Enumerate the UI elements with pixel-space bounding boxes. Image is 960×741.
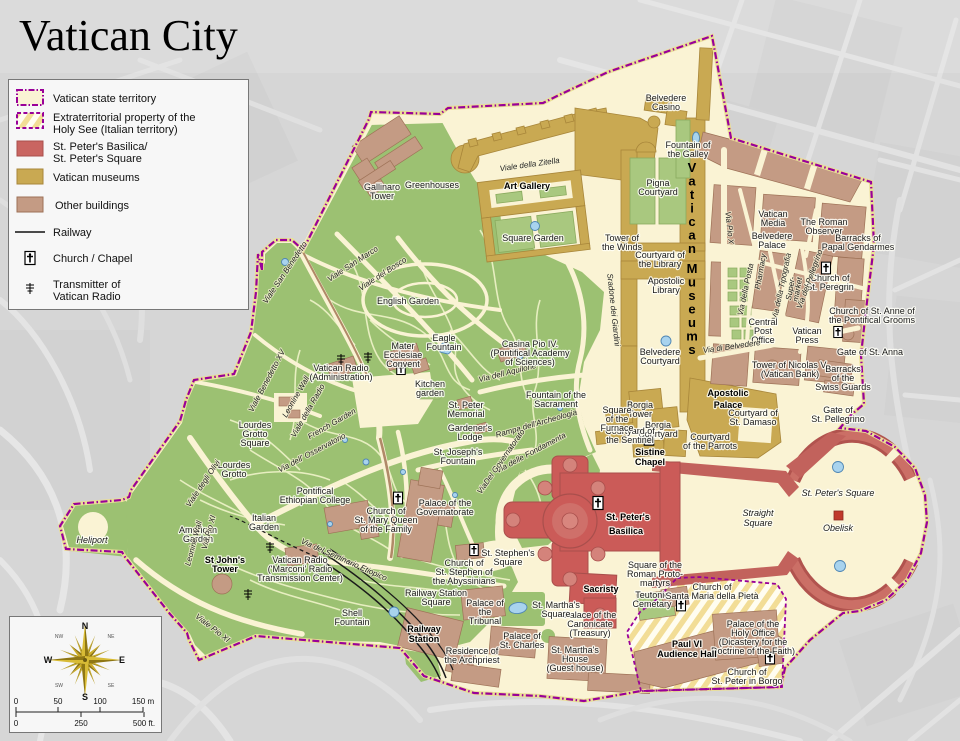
svg-text:Sistine: Sistine bbox=[635, 447, 665, 457]
svg-text:Memorial: Memorial bbox=[447, 409, 484, 419]
svg-text:Garden: Garden bbox=[249, 522, 279, 532]
svg-text:Square: Square bbox=[421, 597, 450, 607]
svg-text:Extraterritorial property of t: Extraterritorial property of the bbox=[53, 112, 195, 124]
svg-text:Railway: Railway bbox=[407, 624, 441, 634]
svg-text:Paul VI: Paul VI bbox=[672, 639, 702, 649]
svg-text:the Archpriest: the Archpriest bbox=[444, 655, 500, 665]
svg-text:Tower: Tower bbox=[212, 564, 238, 574]
svg-text:St. Peter's Square: St. Peter's Square bbox=[53, 153, 142, 165]
svg-text:the Pontifical Grooms: the Pontifical Grooms bbox=[829, 315, 916, 325]
svg-text:Palace: Palace bbox=[758, 240, 786, 250]
svg-text:Audience Hall: Audience Hall bbox=[657, 649, 717, 659]
svg-text:(Administration): (Administration) bbox=[309, 372, 372, 382]
svg-text:Vatican museums: Vatican museums bbox=[53, 172, 140, 184]
svg-text:St. Pellegrino: St. Pellegrino bbox=[811, 414, 865, 424]
svg-text:Grotto: Grotto bbox=[221, 469, 246, 479]
svg-text:(Vatican Bank): (Vatican Bank) bbox=[761, 369, 819, 379]
svg-text:Holy See (Italian territory): Holy See (Italian territory) bbox=[53, 124, 178, 136]
svg-text:S: S bbox=[82, 692, 88, 702]
svg-text:N: N bbox=[82, 621, 89, 631]
svg-text:Church / Chapel: Church / Chapel bbox=[53, 253, 133, 265]
svg-text:Square Garden: Square Garden bbox=[502, 233, 564, 243]
svg-text:Sacrament: Sacrament bbox=[534, 399, 578, 409]
svg-text:Vatican state territory: Vatican state territory bbox=[53, 93, 157, 105]
svg-text:Press: Press bbox=[795, 335, 819, 345]
svg-text:50: 50 bbox=[54, 697, 63, 706]
svg-text:Fountain: Fountain bbox=[440, 456, 475, 466]
svg-text:Fountain: Fountain bbox=[334, 617, 369, 627]
svg-text:NW: NW bbox=[55, 634, 64, 640]
svg-text:150 m: 150 m bbox=[132, 697, 155, 706]
svg-text:St. Damaso: St. Damaso bbox=[729, 417, 776, 427]
svg-text:Heliport: Heliport bbox=[76, 535, 108, 545]
svg-text:the Galley: the Galley bbox=[668, 149, 709, 159]
svg-text:SW: SW bbox=[55, 683, 63, 689]
svg-text:Basilica: Basilica bbox=[609, 526, 644, 536]
svg-text:Lodge: Lodge bbox=[457, 432, 482, 442]
svg-text:E: E bbox=[119, 655, 125, 665]
svg-text:Governatorate: Governatorate bbox=[416, 507, 474, 517]
svg-text:100: 100 bbox=[93, 697, 107, 706]
svg-text:Tower: Tower bbox=[370, 191, 394, 201]
svg-text:Swiss Guards: Swiss Guards bbox=[815, 382, 871, 392]
svg-text:martyrs: martyrs bbox=[640, 578, 670, 588]
svg-text:Art Gallery: Art Gallery bbox=[504, 181, 550, 191]
svg-text:St. Peter's Basilica/: St. Peter's Basilica/ bbox=[53, 141, 148, 153]
svg-text:Doctrine of the Faith): Doctrine of the Faith) bbox=[711, 646, 795, 656]
svg-text:0: 0 bbox=[14, 719, 19, 728]
svg-text:Ethiopian College: Ethiopian College bbox=[280, 495, 351, 505]
svg-text:Square: Square bbox=[493, 557, 522, 567]
svg-text:Tower: Tower bbox=[628, 409, 652, 419]
svg-text:Tribunal: Tribunal bbox=[469, 616, 501, 626]
svg-text:Greenhouses: Greenhouses bbox=[405, 180, 460, 190]
svg-text:the Abyssinians: the Abyssinians bbox=[433, 576, 496, 586]
svg-text:W: W bbox=[44, 655, 53, 665]
svg-text:Square: Square bbox=[743, 518, 772, 528]
svg-text:Casino: Casino bbox=[652, 102, 680, 112]
svg-text:English Garden: English Garden bbox=[377, 296, 439, 306]
svg-text:Transmission Center): Transmission Center) bbox=[257, 573, 343, 583]
svg-text:Apostolic: Apostolic bbox=[707, 388, 748, 398]
svg-text:Obelisk: Obelisk bbox=[823, 523, 854, 533]
svg-text:Railway: Railway bbox=[53, 227, 92, 239]
svg-text:Vatican City: Vatican City bbox=[19, 11, 238, 60]
svg-text:the Library: the Library bbox=[639, 259, 682, 269]
svg-text:SE: SE bbox=[108, 683, 115, 689]
svg-text:(Treasury): (Treasury) bbox=[569, 628, 610, 638]
svg-text:the Sentinel: the Sentinel bbox=[606, 435, 654, 445]
svg-text:Gate of St. Anna: Gate of St. Anna bbox=[837, 347, 903, 357]
svg-text:Square: Square bbox=[541, 609, 570, 619]
svg-text:250: 250 bbox=[74, 719, 88, 728]
svg-text:Furnace: Furnace bbox=[600, 423, 633, 433]
svg-text:500 ft.: 500 ft. bbox=[133, 719, 155, 728]
svg-text:Media: Media bbox=[761, 218, 786, 228]
svg-text:NE: NE bbox=[108, 634, 116, 640]
svg-text:Santa Maria della Pietà: Santa Maria della Pietà bbox=[665, 591, 758, 601]
svg-text:garden: garden bbox=[416, 388, 444, 398]
svg-text:St. Peter in Borgo: St. Peter in Borgo bbox=[711, 676, 782, 686]
svg-text:Chapel: Chapel bbox=[635, 457, 665, 467]
svg-text:Transmitter of: Transmitter of bbox=[53, 279, 121, 291]
svg-text:Vatican Radio: Vatican Radio bbox=[53, 291, 121, 303]
svg-text:Convent: Convent bbox=[386, 359, 420, 369]
svg-text:Fountain: Fountain bbox=[426, 342, 461, 352]
svg-text:Straight: Straight bbox=[742, 508, 774, 518]
svg-text:Papal Gendarmes: Papal Gendarmes bbox=[822, 242, 895, 252]
svg-text:St. Peter's: St. Peter's bbox=[606, 512, 650, 522]
svg-text:(Guest house): (Guest house) bbox=[546, 663, 603, 673]
svg-text:Courtyard: Courtyard bbox=[638, 187, 678, 197]
svg-text:Sacristy: Sacristy bbox=[583, 584, 618, 594]
svg-text:St. Peter's Square: St. Peter's Square bbox=[802, 488, 875, 498]
svg-text:of Sciences): of Sciences) bbox=[505, 357, 555, 367]
svg-text:Station: Station bbox=[409, 634, 440, 644]
svg-text:Other buildings: Other buildings bbox=[55, 200, 129, 212]
svg-text:St. Charles: St. Charles bbox=[500, 640, 545, 650]
svg-text:0: 0 bbox=[14, 697, 19, 706]
svg-text:Library: Library bbox=[652, 285, 680, 295]
svg-text:St. Peregrin: St. Peregrin bbox=[806, 282, 854, 292]
svg-text:of the Family: of the Family bbox=[360, 524, 412, 534]
svg-text:Square: Square bbox=[240, 438, 269, 448]
svg-text:Courtyard: Courtyard bbox=[640, 356, 680, 366]
svg-text:of the Parrots: of the Parrots bbox=[683, 441, 738, 451]
